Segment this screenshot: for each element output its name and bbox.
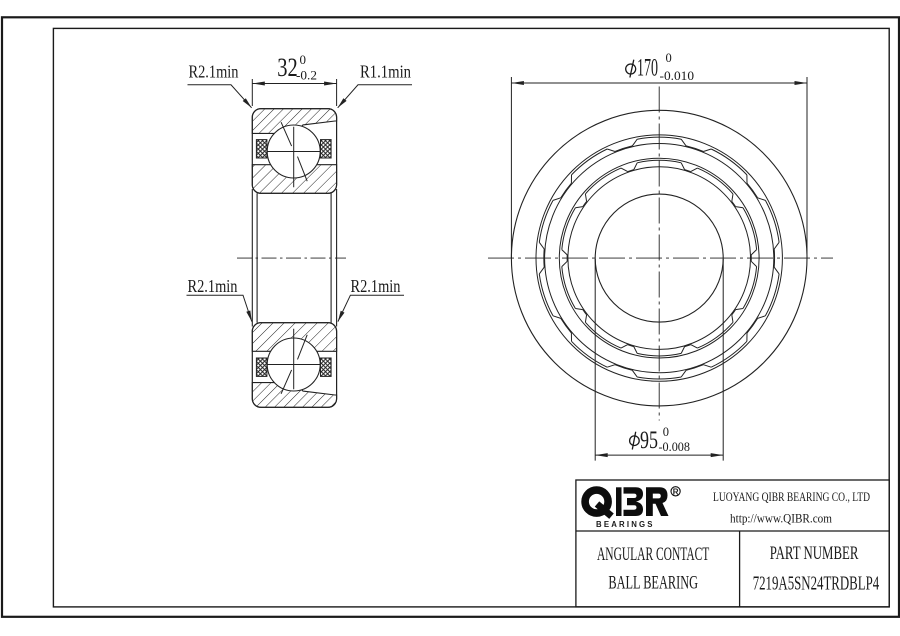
svg-text:95: 95 <box>640 427 658 454</box>
svg-text:BEARINGS: BEARINGS <box>596 520 653 529</box>
svg-text:32: 32 <box>277 53 298 82</box>
svg-text:R2.1min: R2.1min <box>189 62 239 82</box>
svg-text:LUOYANG QIBR BEARING CO., LTD: LUOYANG QIBR BEARING CO., LTD <box>713 489 870 504</box>
svg-text:-0.008: -0.008 <box>659 440 691 454</box>
svg-text:0: 0 <box>300 52 307 67</box>
svg-text:0: 0 <box>666 51 672 65</box>
svg-text:170: 170 <box>637 55 658 82</box>
svg-text:7219A5SN24TRDBLP4: 7219A5SN24TRDBLP4 <box>753 573 880 595</box>
svg-text:R2.1min: R2.1min <box>351 276 401 296</box>
svg-text:http://www.QIBR.com: http://www.QIBR.com <box>730 511 832 526</box>
svg-text:R1.1min: R1.1min <box>360 62 411 82</box>
svg-text:PART NUMBER: PART NUMBER <box>770 544 859 564</box>
svg-text:R: R <box>673 487 679 496</box>
svg-text:-0.010: -0.010 <box>660 69 695 83</box>
svg-text:0: 0 <box>663 425 669 439</box>
svg-text:BALL BEARING: BALL BEARING <box>608 573 698 594</box>
svg-text:-0.2: -0.2 <box>296 68 317 83</box>
svg-text:ANGULAR CONTACT: ANGULAR CONTACT <box>597 544 710 565</box>
svg-text:R2.1min: R2.1min <box>188 276 238 296</box>
